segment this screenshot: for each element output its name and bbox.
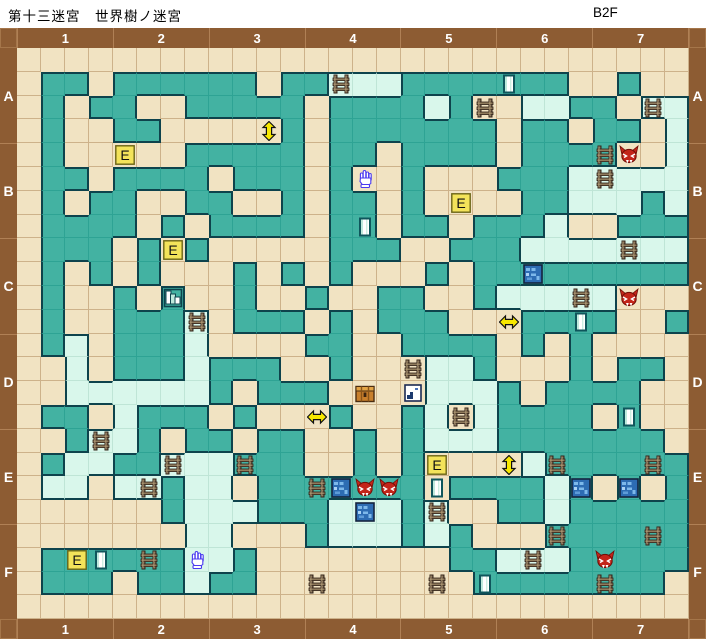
map-cell bbox=[65, 429, 89, 453]
map-cell bbox=[209, 429, 233, 453]
map-cell bbox=[473, 476, 497, 500]
ladder-icon bbox=[451, 407, 471, 427]
ladder-icon bbox=[163, 455, 183, 475]
map-cell bbox=[305, 167, 329, 191]
map-cell bbox=[65, 143, 89, 167]
row-letter-label: B bbox=[689, 143, 706, 238]
map-cell bbox=[593, 476, 617, 500]
map-cell bbox=[593, 595, 617, 619]
map-cell bbox=[113, 381, 137, 405]
map-cell bbox=[257, 262, 281, 286]
map-cell bbox=[257, 524, 281, 548]
map-cell bbox=[593, 310, 617, 334]
ladder-icon bbox=[547, 526, 567, 546]
map-cell bbox=[593, 262, 617, 286]
map-cell bbox=[617, 381, 641, 405]
map-cell bbox=[641, 238, 665, 262]
map-cell bbox=[65, 357, 89, 381]
map-cell bbox=[473, 429, 497, 453]
map-cell bbox=[497, 357, 521, 381]
ladder-icon bbox=[139, 478, 159, 498]
map-cell bbox=[473, 119, 497, 143]
map-cell bbox=[425, 429, 449, 453]
map-cell bbox=[281, 453, 305, 477]
map-cell bbox=[617, 191, 641, 215]
ladder-icon bbox=[595, 145, 615, 165]
map-cell bbox=[545, 500, 569, 524]
map-cell bbox=[521, 72, 545, 96]
map-cell bbox=[665, 572, 689, 596]
ladder-icon bbox=[187, 312, 207, 332]
map-cell bbox=[545, 143, 569, 167]
arrow-horizontal-icon bbox=[499, 312, 519, 332]
ladder-icon bbox=[307, 478, 327, 498]
blue-tile-icon bbox=[523, 264, 543, 284]
map-cell bbox=[209, 357, 233, 381]
map-cell bbox=[353, 238, 377, 262]
map-cell bbox=[161, 572, 185, 596]
ladder-icon bbox=[595, 574, 615, 594]
map-cell bbox=[449, 310, 473, 334]
map-cell bbox=[185, 191, 209, 215]
map-cell bbox=[593, 381, 617, 405]
map-cell bbox=[449, 595, 473, 619]
map-cell bbox=[233, 238, 257, 262]
map-cell bbox=[329, 310, 353, 334]
map-cell bbox=[209, 48, 233, 72]
map-cell bbox=[617, 72, 641, 96]
map-cell bbox=[113, 500, 137, 524]
map-cell bbox=[473, 453, 497, 477]
map-cell bbox=[521, 48, 545, 72]
map-cell bbox=[17, 191, 41, 215]
map-cell bbox=[281, 143, 305, 167]
map-cell bbox=[449, 48, 473, 72]
map-cell bbox=[641, 500, 665, 524]
map-cell bbox=[161, 548, 185, 572]
map-cell bbox=[185, 167, 209, 191]
map-cell bbox=[209, 167, 233, 191]
map-cell bbox=[329, 238, 353, 262]
map-cell bbox=[161, 476, 185, 500]
map-cell bbox=[401, 119, 425, 143]
map-cell bbox=[545, 191, 569, 215]
map-cell bbox=[41, 96, 65, 120]
map-cell bbox=[497, 48, 521, 72]
map-cell bbox=[113, 262, 137, 286]
map-cell bbox=[617, 262, 641, 286]
note-icon bbox=[403, 383, 423, 403]
map-cell bbox=[233, 286, 257, 310]
map-cell bbox=[305, 453, 329, 477]
arrow-horizontal-icon bbox=[307, 407, 327, 427]
map-cell bbox=[89, 143, 113, 167]
map-cell bbox=[473, 286, 497, 310]
map-cell bbox=[17, 476, 41, 500]
map-cell bbox=[281, 476, 305, 500]
map-cell bbox=[521, 453, 545, 477]
map-cell bbox=[497, 595, 521, 619]
map-cell bbox=[257, 500, 281, 524]
map-cell bbox=[17, 381, 41, 405]
map-cell bbox=[353, 310, 377, 334]
map-cell bbox=[65, 167, 89, 191]
map-cell bbox=[521, 286, 545, 310]
map-cell bbox=[353, 334, 377, 358]
map-cell bbox=[569, 357, 593, 381]
map-cell bbox=[281, 500, 305, 524]
map-cell bbox=[257, 572, 281, 596]
map-cell bbox=[665, 48, 689, 72]
map-cell bbox=[185, 96, 209, 120]
map-cell bbox=[617, 48, 641, 72]
map-cell bbox=[305, 72, 329, 96]
map-cell bbox=[329, 357, 353, 381]
map-cell bbox=[473, 167, 497, 191]
map-cell bbox=[569, 215, 593, 239]
map-cell bbox=[137, 500, 161, 524]
map-cell bbox=[305, 310, 329, 334]
map-cell bbox=[113, 48, 137, 72]
map-cell bbox=[449, 548, 473, 572]
map-cell bbox=[617, 595, 641, 619]
map-cell bbox=[113, 72, 137, 96]
map-cell bbox=[353, 96, 377, 120]
map-cell bbox=[617, 500, 641, 524]
map-cell bbox=[377, 191, 401, 215]
ladder-icon bbox=[427, 574, 447, 594]
map-cell bbox=[161, 595, 185, 619]
map-cell bbox=[233, 262, 257, 286]
map-cell bbox=[185, 334, 209, 358]
map-cell bbox=[161, 405, 185, 429]
map-cell bbox=[353, 191, 377, 215]
map-cell bbox=[617, 167, 641, 191]
map-cell bbox=[113, 595, 137, 619]
map-cell bbox=[545, 167, 569, 191]
map-cell bbox=[281, 238, 305, 262]
blue-tile-icon bbox=[331, 478, 351, 498]
map-cell bbox=[401, 595, 425, 619]
map-cell bbox=[113, 215, 137, 239]
map-cell bbox=[137, 334, 161, 358]
map-cell bbox=[353, 572, 377, 596]
map-cell bbox=[641, 548, 665, 572]
map-cell bbox=[305, 548, 329, 572]
map-cell bbox=[425, 334, 449, 358]
map-cell bbox=[233, 167, 257, 191]
map-cell bbox=[281, 429, 305, 453]
map-cell bbox=[137, 262, 161, 286]
map-cell bbox=[137, 48, 161, 72]
map-cell bbox=[257, 286, 281, 310]
map-cell bbox=[473, 191, 497, 215]
map-cell bbox=[329, 191, 353, 215]
map-cell bbox=[233, 381, 257, 405]
map-cell bbox=[569, 548, 593, 572]
map-cell bbox=[545, 119, 569, 143]
map-cell bbox=[281, 334, 305, 358]
map-cell bbox=[281, 72, 305, 96]
event-icon: E bbox=[451, 193, 471, 213]
map-cell bbox=[161, 167, 185, 191]
map-cell bbox=[569, 48, 593, 72]
map-cell bbox=[185, 119, 209, 143]
map-cell bbox=[401, 72, 425, 96]
map-cell bbox=[65, 96, 89, 120]
map-cell bbox=[257, 357, 281, 381]
row-letters-left: ABCDEF bbox=[0, 48, 17, 619]
map-cell bbox=[305, 357, 329, 381]
arrow-vertical-icon bbox=[499, 455, 519, 475]
map-cell bbox=[377, 262, 401, 286]
map-cell bbox=[65, 381, 89, 405]
map-cell bbox=[641, 334, 665, 358]
map-cell bbox=[521, 500, 545, 524]
map-cell bbox=[233, 48, 257, 72]
map-cell bbox=[593, 334, 617, 358]
map-cell bbox=[209, 476, 233, 500]
map-cell bbox=[89, 334, 113, 358]
map-cell bbox=[449, 357, 473, 381]
map-cell bbox=[377, 500, 401, 524]
map-cell bbox=[185, 381, 209, 405]
map-cell bbox=[185, 500, 209, 524]
map-cell bbox=[161, 334, 185, 358]
map-cell bbox=[545, 48, 569, 72]
map-cell bbox=[401, 405, 425, 429]
map-cell bbox=[89, 167, 113, 191]
map-cell bbox=[161, 119, 185, 143]
map-cell bbox=[641, 595, 665, 619]
map-cell bbox=[281, 357, 305, 381]
map-cell bbox=[329, 334, 353, 358]
map-cell bbox=[353, 548, 377, 572]
map-cell bbox=[425, 381, 449, 405]
blue-tile-icon bbox=[571, 478, 591, 498]
map-cell bbox=[233, 119, 257, 143]
map-cell bbox=[401, 167, 425, 191]
map-cell bbox=[209, 286, 233, 310]
map-cell bbox=[353, 262, 377, 286]
map-cell bbox=[449, 119, 473, 143]
map-cell bbox=[185, 476, 209, 500]
map-cell bbox=[209, 453, 233, 477]
map-cell bbox=[137, 381, 161, 405]
map-cell bbox=[41, 548, 65, 572]
map-cell bbox=[41, 500, 65, 524]
map-cell bbox=[17, 357, 41, 381]
row-letter-label: E bbox=[0, 429, 17, 524]
foe-icon bbox=[355, 478, 375, 498]
map-cell bbox=[233, 215, 257, 239]
map-cell bbox=[17, 334, 41, 358]
map-cell bbox=[305, 524, 329, 548]
map-cell bbox=[209, 238, 233, 262]
map-cell bbox=[569, 143, 593, 167]
map-cell bbox=[65, 238, 89, 262]
map-cell bbox=[41, 262, 65, 286]
map-cell bbox=[329, 167, 353, 191]
map-cell bbox=[233, 595, 257, 619]
map-cell bbox=[521, 357, 545, 381]
map-cell bbox=[161, 310, 185, 334]
map-cell bbox=[473, 381, 497, 405]
map-cell bbox=[137, 167, 161, 191]
map-cell bbox=[305, 334, 329, 358]
map-cell bbox=[521, 405, 545, 429]
ladder-icon bbox=[547, 455, 567, 475]
map-cell bbox=[449, 238, 473, 262]
map-cell bbox=[665, 238, 689, 262]
map-cell bbox=[449, 572, 473, 596]
map-cell bbox=[401, 524, 425, 548]
map-cell bbox=[233, 572, 257, 596]
col-number-label: 4 bbox=[305, 28, 401, 48]
map-cell bbox=[257, 96, 281, 120]
map-cell bbox=[425, 72, 449, 96]
map-cell bbox=[425, 191, 449, 215]
map-cell bbox=[449, 500, 473, 524]
event-icon: E bbox=[115, 145, 135, 165]
map-cell bbox=[41, 286, 65, 310]
blue-tile-icon bbox=[355, 502, 375, 522]
map-cell bbox=[473, 72, 497, 96]
map-cell bbox=[473, 500, 497, 524]
map-cell bbox=[89, 215, 113, 239]
map-cell bbox=[89, 357, 113, 381]
map-cell bbox=[65, 310, 89, 334]
map-cell bbox=[257, 72, 281, 96]
map-cell bbox=[257, 167, 281, 191]
map-cell bbox=[185, 72, 209, 96]
map-cell bbox=[641, 405, 665, 429]
map-cell bbox=[497, 476, 521, 500]
col-number-label: 2 bbox=[113, 28, 209, 48]
map-cell bbox=[185, 429, 209, 453]
map-cell bbox=[137, 524, 161, 548]
blue-tile-icon bbox=[619, 478, 639, 498]
map-cell bbox=[209, 310, 233, 334]
map-cell bbox=[593, 215, 617, 239]
ladder-icon bbox=[619, 240, 639, 260]
map-cell bbox=[473, 310, 497, 334]
map-grid: EEEEE bbox=[17, 48, 689, 619]
map-cell bbox=[617, 357, 641, 381]
map-cell bbox=[257, 405, 281, 429]
event-icon: E bbox=[427, 455, 447, 475]
map-cell bbox=[665, 500, 689, 524]
map-cell bbox=[353, 143, 377, 167]
col-number-label: 7 bbox=[592, 619, 688, 639]
map-cell bbox=[497, 381, 521, 405]
map-cell bbox=[617, 429, 641, 453]
map-cell bbox=[473, 334, 497, 358]
map-cell bbox=[545, 429, 569, 453]
map-cell bbox=[329, 500, 353, 524]
map-cell bbox=[425, 238, 449, 262]
map-cell bbox=[329, 48, 353, 72]
map-cell bbox=[497, 548, 521, 572]
map-cell bbox=[641, 191, 665, 215]
map-title: 第十三迷宮 世界樹ノ迷宮 bbox=[8, 5, 182, 25]
col-number-label: 3 bbox=[209, 28, 305, 48]
map-cell bbox=[41, 381, 65, 405]
svg-text:E: E bbox=[168, 242, 177, 258]
map-cell bbox=[401, 334, 425, 358]
map-cell bbox=[593, 429, 617, 453]
map-cell bbox=[329, 262, 353, 286]
map-cell bbox=[89, 453, 113, 477]
map-cell bbox=[521, 215, 545, 239]
map-cell bbox=[425, 286, 449, 310]
map-cell bbox=[113, 119, 137, 143]
map-cell bbox=[17, 238, 41, 262]
map-cell bbox=[425, 310, 449, 334]
map-cell bbox=[137, 96, 161, 120]
map-cell bbox=[617, 310, 641, 334]
map-cell bbox=[137, 143, 161, 167]
map-cell bbox=[665, 453, 689, 477]
svg-text:E: E bbox=[120, 147, 129, 163]
hand-icon bbox=[187, 550, 207, 570]
map-cell bbox=[545, 334, 569, 358]
svg-text:E: E bbox=[456, 195, 465, 211]
ladder-icon bbox=[643, 526, 663, 546]
map-cell bbox=[425, 262, 449, 286]
door-icon bbox=[619, 407, 639, 427]
map-cell bbox=[641, 119, 665, 143]
map-cell bbox=[185, 238, 209, 262]
map-cell bbox=[665, 310, 689, 334]
map-cell bbox=[17, 500, 41, 524]
map-cell bbox=[377, 453, 401, 477]
map-cell bbox=[593, 286, 617, 310]
map-cell bbox=[545, 72, 569, 96]
map-cell bbox=[89, 595, 113, 619]
map-cell bbox=[41, 429, 65, 453]
map-cell bbox=[209, 595, 233, 619]
map-cell bbox=[425, 524, 449, 548]
map-cell bbox=[209, 500, 233, 524]
map-cell bbox=[665, 191, 689, 215]
ladder-icon bbox=[643, 455, 663, 475]
map-cell bbox=[161, 429, 185, 453]
map-cell bbox=[401, 429, 425, 453]
map-cell bbox=[497, 405, 521, 429]
map-cell bbox=[257, 215, 281, 239]
row-letter-label: A bbox=[0, 48, 17, 143]
map-cell bbox=[209, 548, 233, 572]
map-cell bbox=[665, 143, 689, 167]
map-cell bbox=[209, 334, 233, 358]
map-cell bbox=[113, 524, 137, 548]
map-cell bbox=[233, 405, 257, 429]
door-icon bbox=[475, 574, 495, 594]
map-cell bbox=[41, 48, 65, 72]
map-cell bbox=[137, 572, 161, 596]
map-cell bbox=[593, 191, 617, 215]
map-cell bbox=[521, 119, 545, 143]
map-cell bbox=[377, 119, 401, 143]
map-cell bbox=[545, 548, 569, 572]
map-cell bbox=[233, 191, 257, 215]
map-cell bbox=[473, 357, 497, 381]
map-cell bbox=[641, 476, 665, 500]
map-cell bbox=[185, 595, 209, 619]
map-cell bbox=[65, 524, 89, 548]
col-number-label: 1 bbox=[17, 619, 113, 639]
